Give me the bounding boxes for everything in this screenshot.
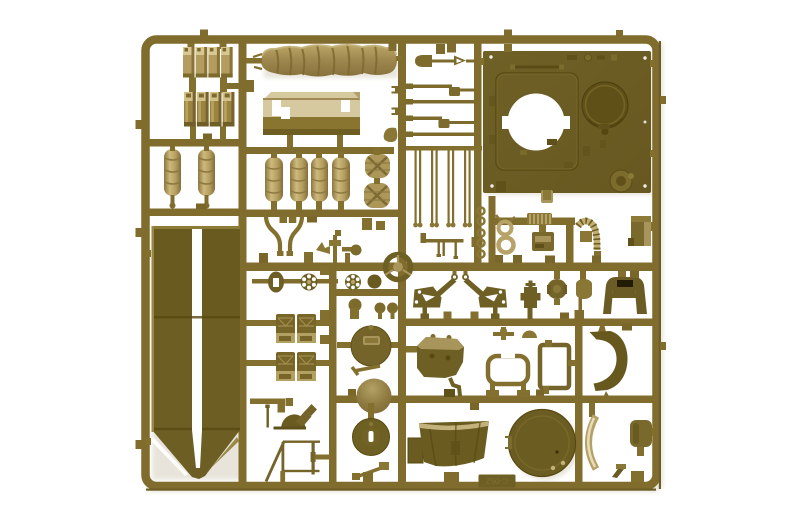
svg-text:C-052: C-052 bbox=[486, 476, 508, 485]
